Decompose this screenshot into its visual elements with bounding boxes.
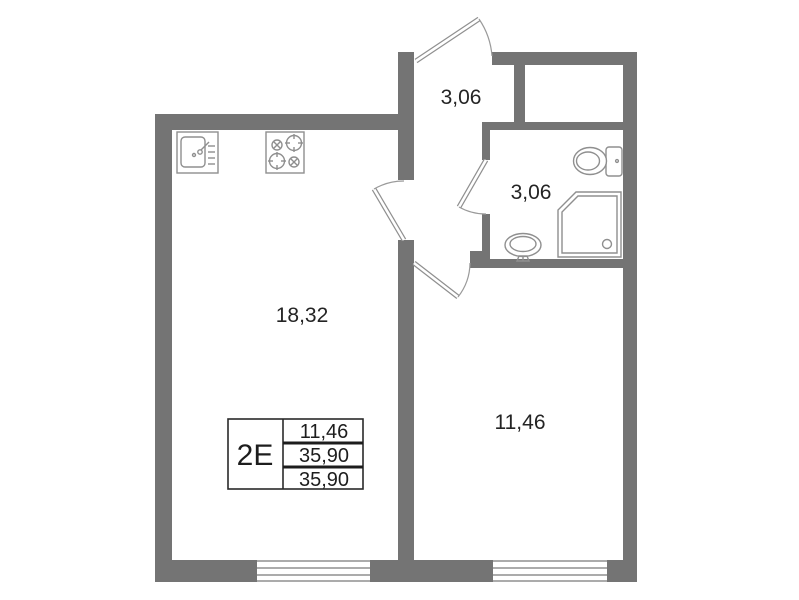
door-swing-arc (479, 19, 492, 56)
window-living (257, 560, 370, 582)
entrance-door (416, 19, 492, 61)
window-icon (257, 560, 370, 582)
stove-icon (266, 132, 304, 173)
toilet-icon (574, 147, 623, 176)
wall-top-living (155, 114, 414, 130)
wall-middle-lower (398, 240, 414, 582)
bedroom-area-label: 11,46 (495, 411, 546, 434)
floor-plan-drawing: 18,32 11,46 3,06 3,06 2Е 11,46 35,90 35,… (0, 0, 799, 600)
bathroom-area-label: 3,06 (511, 181, 552, 204)
stamp-total-area-value: 35,90 (299, 445, 349, 467)
walls (155, 52, 637, 582)
door-swing-arc (459, 207, 486, 214)
wall-bathroom-bottom (470, 259, 623, 268)
wall-bathroom-bottom-stub (470, 251, 488, 268)
window-bedroom (493, 560, 607, 582)
stamp-total-area-with-balcony-value: 35,90 (299, 469, 349, 491)
wall-bottom-right (607, 560, 637, 582)
window-icon (493, 560, 607, 582)
door-swing-arc (458, 263, 470, 297)
bathroom-door (459, 160, 486, 214)
wall-bathroom-left-upper (482, 130, 490, 160)
hallway-area-label: 3,06 (441, 86, 482, 109)
wall-top-right (492, 52, 637, 65)
shower-icon (558, 192, 621, 257)
wall-shaft-divider (514, 65, 525, 122)
door-swing-arc (374, 181, 404, 189)
wall-bottom-middle (370, 560, 493, 582)
wall-bottom-left (155, 560, 257, 582)
living-room-area-label: 18,32 (276, 304, 329, 327)
kitchen-sink-icon (177, 132, 218, 173)
wall-middle-upper (398, 52, 414, 180)
wall-bathroom-top (482, 122, 623, 130)
stamp-type-label: 2Е (237, 439, 274, 472)
bedroom-door (414, 263, 470, 297)
washbasin-icon (505, 234, 541, 262)
wall-right (623, 52, 637, 582)
wall-left (155, 114, 172, 582)
floor-plan-canvas: 18,32 11,46 3,06 3,06 2Е 11,46 35,90 35,… (0, 0, 799, 600)
stamp-living-area-value: 11,46 (300, 421, 349, 443)
living-room-door (374, 181, 404, 240)
apartment-stamp-table: 2Е 11,46 35,90 35,90 (228, 419, 363, 491)
